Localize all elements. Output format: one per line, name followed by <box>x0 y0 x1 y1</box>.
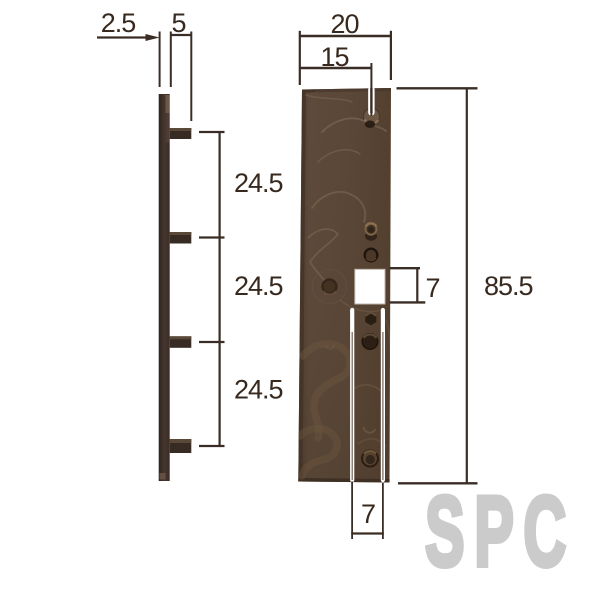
svg-text:SPC: SPC <box>425 477 576 587</box>
svg-text:24.5: 24.5 <box>234 168 283 198</box>
svg-text:20: 20 <box>330 9 358 39</box>
svg-text:7: 7 <box>426 273 440 303</box>
svg-text:85.5: 85.5 <box>484 271 533 301</box>
svg-text:2.5: 2.5 <box>101 8 136 38</box>
svg-text:24.5: 24.5 <box>234 271 283 301</box>
svg-text:5: 5 <box>171 8 185 38</box>
svg-text:7: 7 <box>361 499 375 529</box>
svg-text:24.5: 24.5 <box>234 375 283 405</box>
